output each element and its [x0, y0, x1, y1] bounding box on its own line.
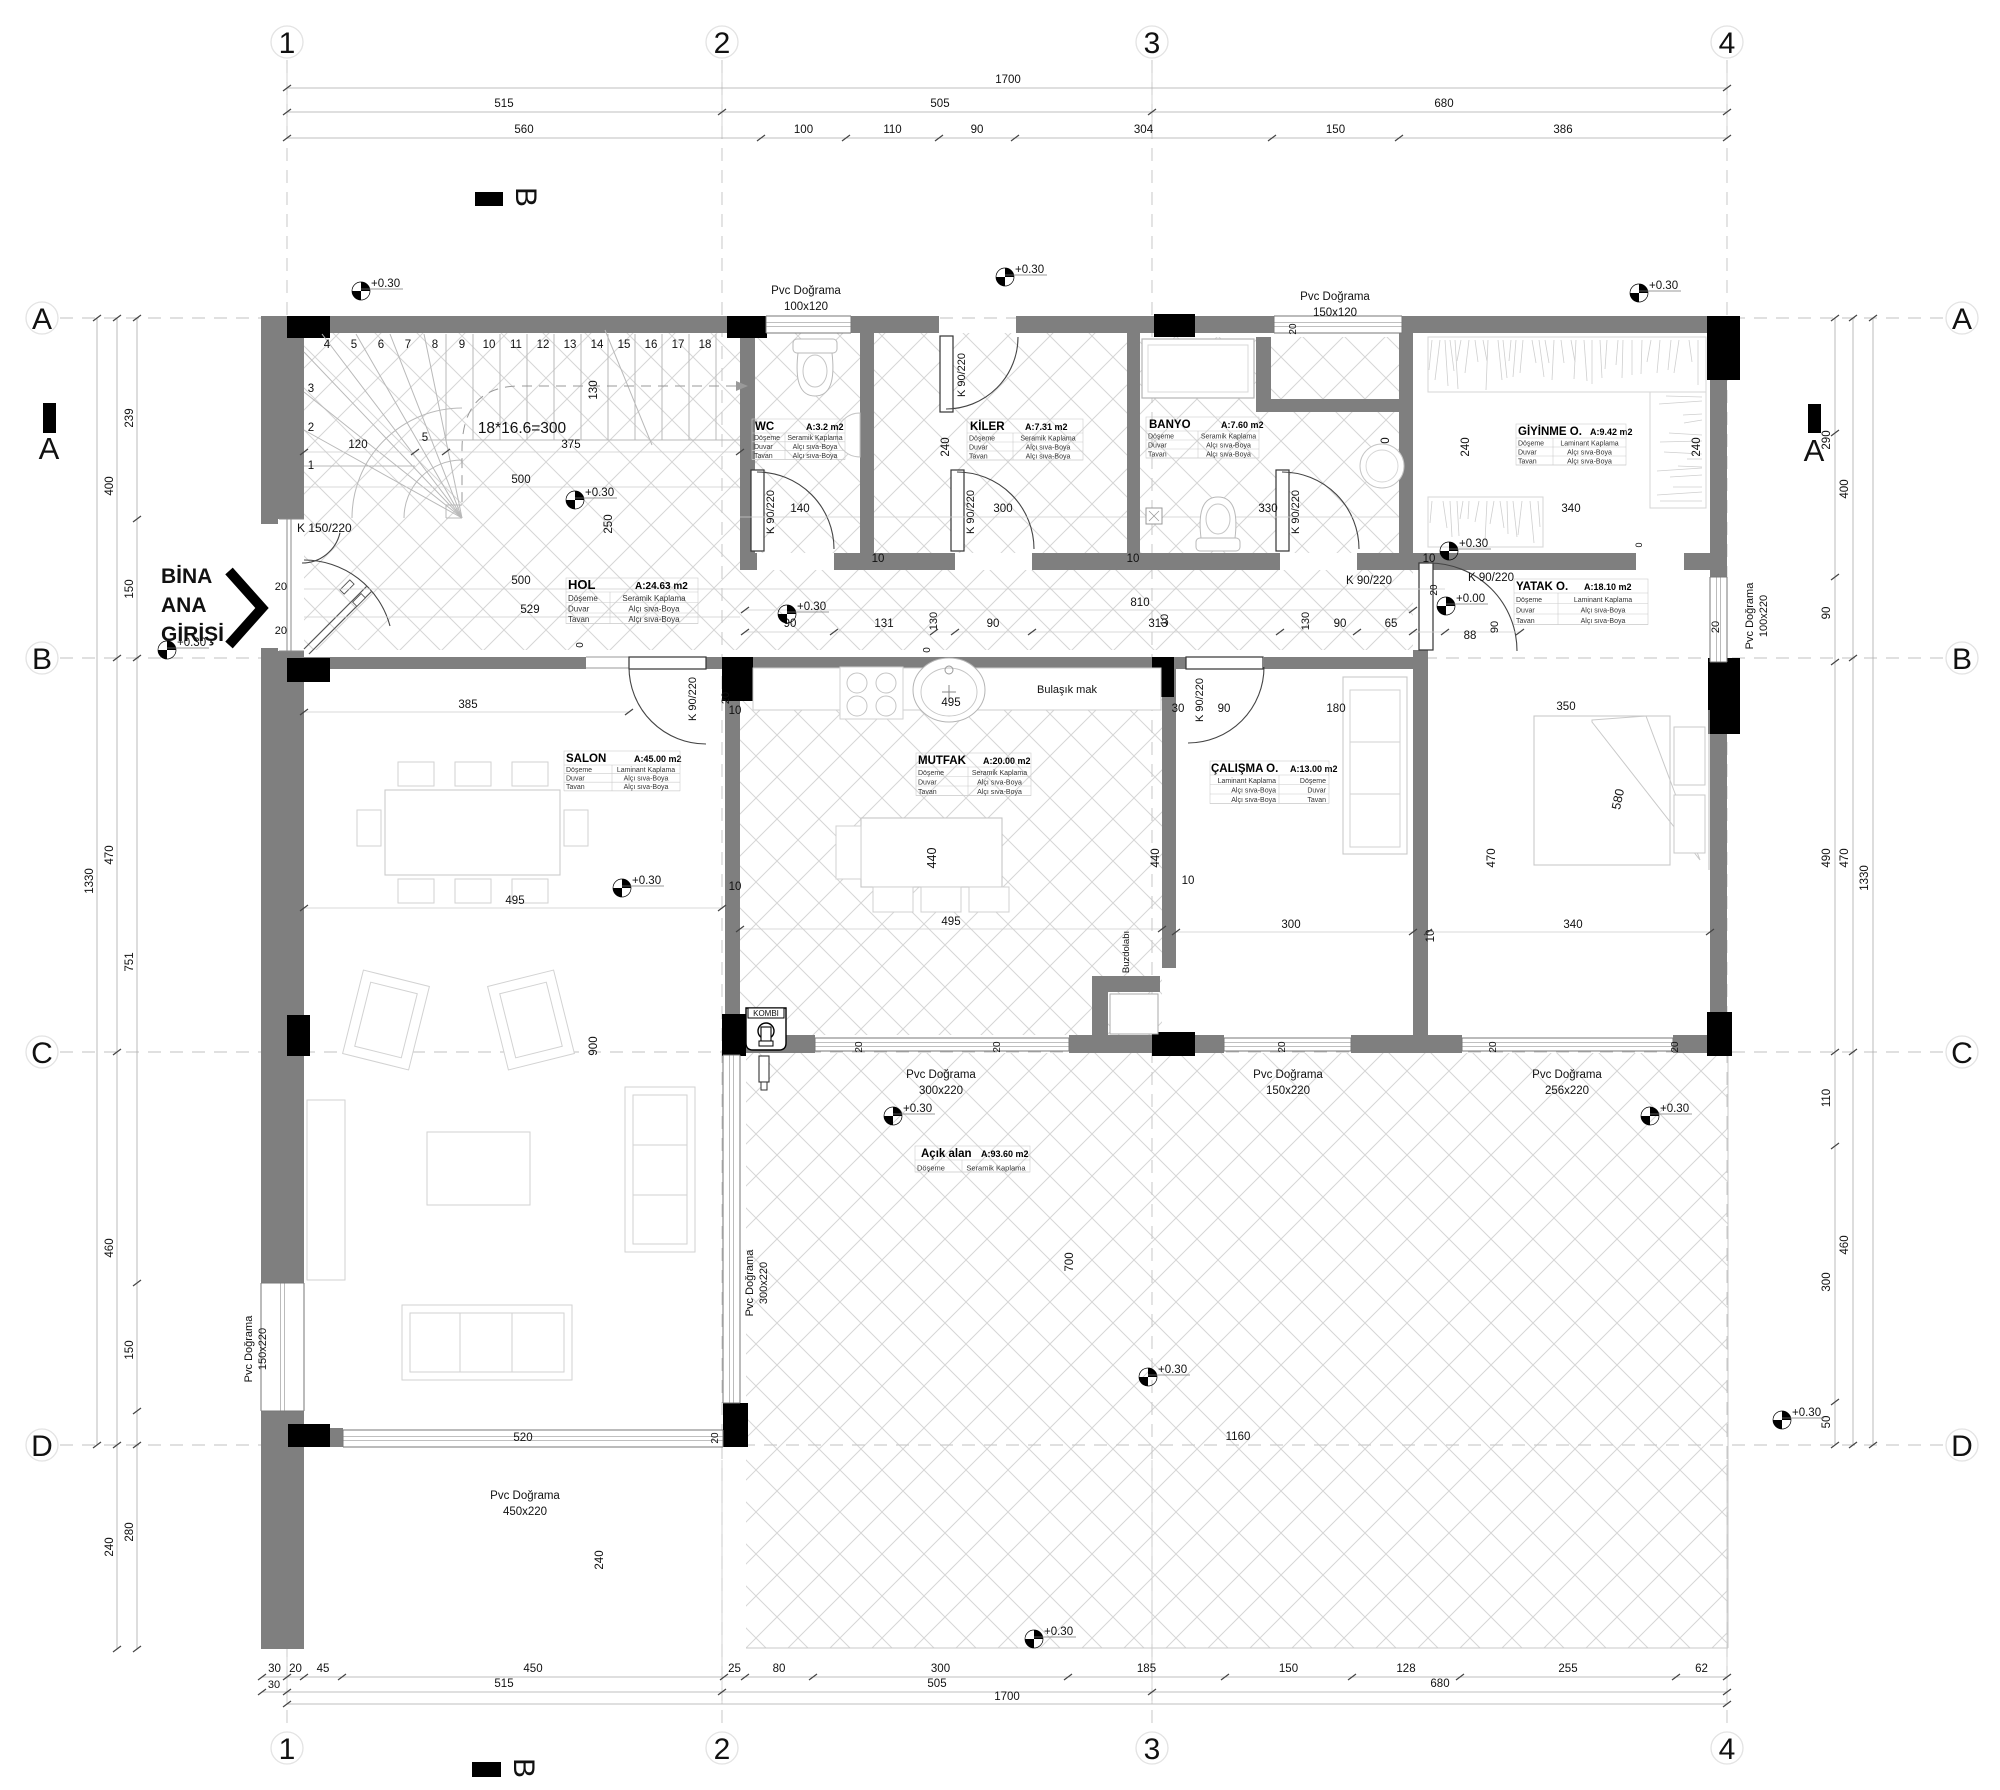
svg-text:20: 20 [720, 692, 732, 704]
svg-text:20: 20 [710, 1432, 721, 1444]
svg-text:Alçı sıva-Boya: Alçı sıva-Boya [1026, 453, 1071, 460]
svg-text:330: 330 [1258, 503, 1277, 515]
svg-text:460: 460 [1839, 1235, 1851, 1254]
svg-text:50: 50 [1821, 1416, 1833, 1429]
svg-text:Seramik Kaplama: Seramik Kaplama [1201, 433, 1256, 440]
svg-text:300: 300 [1281, 919, 1300, 931]
svg-text:Alçı sıva-Boya: Alçı sıva-Boya [1567, 449, 1612, 456]
svg-text:340: 340 [1561, 503, 1580, 515]
svg-text:Duvar: Duvar [568, 604, 590, 613]
svg-text:A:24.63 m2: A:24.63 m2 [635, 581, 688, 592]
svg-text:+0.30: +0.30 [903, 1103, 932, 1115]
svg-text:+0.30: +0.30 [1792, 1407, 1821, 1419]
svg-text:20: 20 [289, 1663, 302, 1675]
svg-text:Laminant Kaplama: Laminant Kaplama [1560, 440, 1618, 447]
svg-text:400: 400 [104, 476, 116, 495]
svg-text:A: A [32, 303, 52, 336]
svg-text:350: 350 [1556, 701, 1575, 713]
svg-text:130: 130 [588, 380, 600, 399]
svg-text:MUTFAK: MUTFAK [918, 755, 967, 767]
svg-text:+0.30: +0.30 [371, 278, 400, 290]
svg-text:90: 90 [971, 124, 984, 136]
svg-text:K 90/220: K 90/220 [1194, 678, 1206, 722]
svg-text:4: 4 [1719, 1733, 1736, 1766]
svg-text:2: 2 [714, 27, 731, 60]
svg-text:B: B [507, 1758, 540, 1778]
svg-text:+0.30: +0.30 [1649, 280, 1678, 292]
svg-text:150x220: 150x220 [257, 1328, 269, 1370]
svg-text:Buzdolabı: Buzdolabı [1121, 931, 1132, 973]
svg-text:450: 450 [523, 1663, 542, 1675]
svg-text:Alçı sıva-Boya: Alçı sıva-Boya [1206, 451, 1251, 458]
svg-text:11: 11 [510, 339, 522, 351]
svg-text:150: 150 [124, 1340, 136, 1359]
svg-text:K 90/220: K 90/220 [956, 353, 968, 397]
svg-text:10: 10 [1182, 875, 1195, 887]
svg-text:470: 470 [1839, 848, 1851, 867]
svg-text:10: 10 [1159, 614, 1171, 626]
svg-text:9: 9 [459, 339, 465, 351]
svg-text:3: 3 [1144, 27, 1161, 60]
svg-text:+0.30: +0.30 [1015, 264, 1044, 276]
svg-text:Tavan: Tavan [754, 453, 773, 460]
svg-text:Bulaşık mak: Bulaşık mak [1037, 684, 1097, 696]
svg-text:Laminant Kaplama: Laminant Kaplama [617, 767, 675, 774]
svg-text:25: 25 [728, 1663, 741, 1675]
svg-text:180: 180 [1326, 703, 1345, 715]
svg-text:130: 130 [928, 612, 940, 630]
svg-text:Tavan: Tavan [568, 615, 589, 624]
svg-text:30: 30 [1172, 703, 1185, 715]
svg-text:700: 700 [1064, 1252, 1076, 1271]
svg-text:5: 5 [351, 339, 357, 351]
svg-text:385: 385 [458, 699, 477, 711]
svg-text:A:93.60 m2: A:93.60 m2 [981, 1149, 1029, 1159]
svg-text:KOMBI: KOMBI [753, 1009, 779, 1018]
svg-text:440: 440 [925, 848, 939, 869]
svg-text:A: A [39, 431, 60, 466]
svg-text:110: 110 [883, 124, 901, 136]
svg-text:185: 185 [1137, 1663, 1156, 1675]
svg-text:Döşeme: Döşeme [1300, 778, 1326, 785]
svg-text:K 90/220: K 90/220 [965, 490, 977, 534]
svg-text:K 90/220: K 90/220 [687, 677, 699, 721]
svg-text:A:45.00 m2: A:45.00 m2 [634, 754, 682, 764]
svg-text:Duvar: Duvar [918, 779, 937, 786]
svg-text:Tavan: Tavan [1516, 618, 1535, 625]
svg-text:HOL: HOL [568, 577, 596, 592]
svg-text:Pvc Doğrama: Pvc Doğrama [1253, 1069, 1323, 1081]
svg-text:90: 90 [1218, 703, 1231, 715]
svg-text:0: 0 [575, 642, 586, 648]
svg-text:Pvc Doğrama: Pvc Doğrama [906, 1069, 976, 1081]
svg-text:240: 240 [1691, 437, 1703, 456]
svg-text:460: 460 [104, 1238, 116, 1257]
svg-text:Pvc Doğrama: Pvc Doğrama [771, 285, 841, 297]
svg-text:+0.00: +0.00 [1456, 593, 1485, 605]
svg-text:+0.30: +0.30 [1044, 1626, 1073, 1638]
svg-text:Tavan: Tavan [969, 453, 988, 460]
svg-text:Alçı sıva-Boya: Alçı sıva-Boya [1231, 797, 1276, 804]
svg-text:490: 490 [1821, 848, 1833, 867]
svg-text:150: 150 [1279, 1663, 1298, 1675]
svg-text:A:7.31 m2: A:7.31 m2 [1025, 422, 1068, 432]
svg-text:YATAK O.: YATAK O. [1516, 581, 1568, 593]
svg-text:90: 90 [1821, 607, 1833, 620]
svg-text:7: 7 [405, 339, 411, 351]
svg-text:140: 140 [790, 503, 809, 515]
svg-text:A:7.60 m2: A:7.60 m2 [1221, 420, 1264, 430]
svg-text:400: 400 [1839, 479, 1851, 498]
svg-text:2: 2 [714, 1733, 731, 1766]
svg-text:GİYİNME O.: GİYİNME O. [1518, 425, 1582, 438]
svg-text:751: 751 [124, 952, 136, 971]
svg-text:Seramik Kaplama: Seramik Kaplama [972, 770, 1027, 777]
svg-text:Döşeme: Döşeme [568, 594, 598, 603]
svg-text:+0.30: +0.30 [1660, 1103, 1689, 1115]
svg-text:Döşeme: Döşeme [918, 770, 944, 777]
svg-text:Tavan: Tavan [1307, 797, 1326, 804]
svg-text:515: 515 [494, 98, 513, 110]
svg-text:10: 10 [729, 881, 742, 893]
svg-text:300: 300 [1821, 1272, 1833, 1291]
svg-text:20: 20 [1277, 1041, 1288, 1053]
svg-text:240: 240 [594, 1550, 606, 1569]
svg-text:Duvar: Duvar [1518, 449, 1537, 456]
svg-text:1700: 1700 [995, 74, 1021, 86]
svg-text:520: 520 [513, 1432, 532, 1444]
svg-text:+0.30: +0.30 [1459, 538, 1488, 550]
svg-text:90: 90 [1334, 618, 1347, 630]
svg-text:100: 100 [794, 124, 813, 136]
svg-text:255: 255 [1558, 1663, 1577, 1675]
svg-text:Duvar: Duvar [969, 444, 988, 451]
svg-text:505: 505 [930, 98, 949, 110]
svg-text:Alçı sıva-Boya: Alçı sıva-Boya [793, 453, 838, 460]
svg-text:10: 10 [1127, 553, 1140, 565]
svg-text:16: 16 [645, 339, 658, 351]
svg-text:Pvc Doğrama: Pvc Doğrama [490, 1490, 560, 1502]
svg-text:300: 300 [931, 1663, 950, 1675]
svg-text:900: 900 [588, 1036, 600, 1055]
svg-text:C: C [1951, 1037, 1973, 1070]
svg-text:17: 17 [672, 339, 685, 351]
svg-text:810: 810 [1130, 597, 1149, 609]
svg-text:386: 386 [1553, 124, 1572, 136]
svg-text:240: 240 [940, 437, 952, 456]
svg-text:250: 250 [603, 514, 615, 533]
svg-text:D: D [1951, 1430, 1973, 1463]
svg-text:Seramik Kaplama: Seramik Kaplama [787, 435, 842, 442]
svg-text:500: 500 [511, 474, 530, 486]
svg-text:6: 6 [378, 339, 384, 351]
svg-text:0: 0 [922, 647, 933, 653]
svg-text:3: 3 [308, 383, 314, 395]
svg-text:88: 88 [1464, 630, 1477, 642]
svg-text:505: 505 [927, 1678, 946, 1690]
svg-text:90: 90 [987, 618, 1000, 630]
svg-text:Pvc Doğrama: Pvc Doğrama [1532, 1069, 1602, 1081]
svg-text:Alçı sıva-Boya: Alçı sıva-Boya [1567, 458, 1612, 465]
svg-text:13: 13 [564, 339, 577, 351]
svg-text:KİLER: KİLER [970, 420, 1005, 433]
svg-text:K 90/220: K 90/220 [1346, 575, 1392, 587]
svg-text:Tavan: Tavan [918, 789, 937, 796]
svg-text:Pvc Doğrama: Pvc Doğrama [243, 1315, 255, 1383]
svg-text:Döşeme: Döşeme [754, 435, 780, 442]
svg-text:Pvc Doğrama: Pvc Doğrama [1300, 291, 1370, 303]
svg-text:Duvar: Duvar [566, 776, 585, 783]
svg-text:Döşeme: Döşeme [1518, 440, 1544, 447]
svg-text:Alçı sıva-Boya: Alçı sıva-Boya [628, 615, 680, 624]
svg-text:ANA: ANA [161, 594, 207, 617]
svg-text:240: 240 [104, 1537, 116, 1556]
svg-text:B: B [509, 187, 542, 207]
svg-text:B: B [1952, 643, 1972, 676]
svg-text:1160: 1160 [1226, 1431, 1251, 1443]
svg-text:D: D [31, 1430, 53, 1463]
svg-text:Alçı sıva-Boya: Alçı sıva-Boya [1231, 787, 1276, 794]
svg-text:+0.30: +0.30 [177, 637, 206, 649]
svg-text:1: 1 [279, 27, 296, 60]
svg-text:BİNA: BİNA [161, 565, 212, 588]
svg-text:B: B [32, 643, 52, 676]
svg-text:18*16.6=300: 18*16.6=300 [478, 420, 567, 437]
svg-text:3: 3 [1144, 1733, 1161, 1766]
svg-text:280: 280 [124, 1522, 136, 1541]
svg-text:240: 240 [1460, 437, 1472, 456]
svg-text:375: 375 [561, 439, 580, 451]
svg-text:K 150/220: K 150/220 [297, 521, 352, 535]
svg-text:495: 495 [505, 895, 524, 907]
svg-text:K 90/220: K 90/220 [1468, 572, 1514, 584]
svg-text:Laminant Kaplama: Laminant Kaplama [1574, 597, 1632, 604]
svg-text:1: 1 [308, 460, 314, 472]
svg-text:+0.30: +0.30 [797, 601, 826, 613]
svg-text:300x220: 300x220 [919, 1085, 963, 1097]
svg-text:15: 15 [618, 339, 631, 351]
svg-text:Döşeme: Döşeme [1148, 433, 1174, 440]
svg-text:Alçı sıva-Boya: Alçı sıva-Boya [1581, 618, 1626, 625]
svg-text:A: A [1952, 303, 1972, 336]
svg-text:680: 680 [1434, 98, 1453, 110]
svg-text:20: 20 [854, 1041, 865, 1053]
svg-text:A: A [1804, 433, 1825, 468]
svg-text:Döşeme: Döşeme [969, 435, 995, 442]
svg-text:20: 20 [992, 1041, 1003, 1053]
svg-text:Alçı sıva-Boya: Alçı sıva-Boya [1581, 607, 1626, 614]
svg-text:30: 30 [268, 1679, 280, 1691]
svg-text:128: 128 [1396, 1663, 1415, 1675]
svg-text:18: 18 [699, 339, 712, 351]
svg-text:10: 10 [1425, 930, 1437, 943]
svg-text:Laminant Kaplama: Laminant Kaplama [1218, 778, 1276, 785]
svg-text:Alçı sıva-Boya: Alçı sıva-Boya [628, 604, 680, 613]
svg-text:450x220: 450x220 [503, 1506, 547, 1518]
svg-text:150: 150 [1326, 124, 1345, 136]
svg-text:Seramik Kaplama: Seramik Kaplama [622, 594, 686, 603]
svg-text:12: 12 [537, 339, 550, 351]
svg-text:239: 239 [124, 408, 136, 427]
svg-text:100x220: 100x220 [1758, 595, 1770, 637]
svg-text:Pvc Doğrama: Pvc Doğrama [1744, 582, 1756, 650]
svg-text:45: 45 [317, 1663, 330, 1675]
svg-text:WC: WC [755, 421, 774, 433]
svg-text:495: 495 [941, 697, 960, 709]
svg-text:529: 529 [520, 604, 539, 616]
svg-text:131: 131 [874, 618, 893, 630]
svg-text:2: 2 [308, 422, 314, 434]
svg-text:100x120: 100x120 [784, 301, 828, 313]
svg-text:Döşeme: Döşeme [917, 1163, 945, 1172]
svg-text:20: 20 [1429, 584, 1440, 596]
svg-text:10: 10 [1423, 553, 1436, 565]
svg-text:440: 440 [1150, 848, 1162, 867]
svg-text:150x120: 150x120 [1313, 307, 1357, 319]
svg-text:20: 20 [275, 581, 287, 593]
svg-text:4: 4 [324, 339, 331, 351]
svg-text:0: 0 [1634, 542, 1644, 547]
svg-text:+0.30: +0.30 [1158, 1364, 1187, 1376]
svg-text:Seramik Kaplama: Seramik Kaplama [1020, 435, 1075, 442]
svg-text:Alçı sıva-Boya: Alçı sıva-Boya [977, 789, 1022, 796]
svg-text:Döşeme: Döşeme [1516, 597, 1542, 604]
svg-text:10: 10 [872, 553, 885, 565]
svg-text:470: 470 [104, 845, 116, 864]
svg-text:80: 80 [773, 1663, 786, 1675]
svg-text:20: 20 [1670, 1041, 1681, 1053]
svg-text:495: 495 [941, 916, 960, 928]
svg-text:SALON: SALON [566, 753, 606, 765]
svg-text:Tavan: Tavan [1518, 458, 1537, 465]
svg-text:Alçı sıva-Boya: Alçı sıva-Boya [793, 444, 838, 451]
svg-text:Duvar: Duvar [754, 444, 773, 451]
svg-text:340: 340 [1563, 919, 1582, 931]
svg-text:K 90/220: K 90/220 [765, 490, 777, 534]
svg-text:1700: 1700 [994, 1691, 1020, 1703]
svg-text:62: 62 [1695, 1663, 1708, 1675]
svg-text:20: 20 [275, 625, 287, 637]
svg-text:150: 150 [124, 579, 136, 598]
svg-text:470: 470 [1486, 848, 1498, 867]
svg-text:BANYO: BANYO [1149, 419, 1191, 431]
svg-text:Açık alan: Açık alan [921, 1148, 972, 1160]
svg-text:10: 10 [483, 339, 496, 351]
svg-text:Alçı sıva-Boya: Alçı sıva-Boya [1026, 444, 1071, 451]
svg-text:1330: 1330 [1859, 865, 1871, 891]
svg-text:30: 30 [268, 1663, 281, 1675]
svg-text:C: C [31, 1037, 53, 1070]
svg-text:Tavan: Tavan [566, 784, 585, 791]
svg-text:110: 110 [1821, 1089, 1833, 1107]
svg-text:+0.30: +0.30 [585, 487, 614, 499]
svg-text:10: 10 [729, 705, 742, 717]
svg-text:A:18.10 m2: A:18.10 m2 [1584, 582, 1632, 592]
svg-text:8: 8 [432, 339, 438, 351]
svg-text:304: 304 [1134, 124, 1154, 136]
svg-text:A:3.2 m2: A:3.2 m2 [806, 422, 844, 432]
svg-text:1: 1 [279, 1733, 296, 1766]
svg-text:90: 90 [1489, 621, 1501, 633]
svg-text:+0.30: +0.30 [632, 875, 661, 887]
svg-text:ÇALIŞMA O.: ÇALIŞMA O. [1211, 763, 1278, 775]
svg-text:20: 20 [1710, 621, 1722, 633]
svg-text:A:20.00 m2: A:20.00 m2 [983, 756, 1031, 766]
svg-text:65: 65 [1385, 618, 1398, 630]
svg-text:Döşeme: Döşeme [566, 767, 592, 774]
svg-text:Alçı sıva-Boya: Alçı sıva-Boya [624, 776, 669, 783]
svg-text:4: 4 [1719, 27, 1736, 60]
svg-text:Pvc Doğrama: Pvc Doğrama [744, 1249, 756, 1317]
svg-text:Tavan: Tavan [1148, 451, 1167, 458]
svg-text:500: 500 [511, 575, 530, 587]
svg-text:150x220: 150x220 [1266, 1085, 1310, 1097]
svg-text:1330: 1330 [84, 868, 96, 894]
svg-text:120: 120 [348, 439, 367, 451]
svg-text:20: 20 [1488, 1041, 1499, 1053]
svg-text:Alçı sıva-Boya: Alçı sıva-Boya [1206, 442, 1251, 449]
svg-text:Seramik Kaplama: Seramik Kaplama [966, 1163, 1026, 1172]
svg-text:680: 680 [1430, 1678, 1449, 1690]
svg-text:300: 300 [993, 503, 1012, 515]
svg-text:515: 515 [494, 1678, 513, 1690]
svg-text:Duvar: Duvar [1516, 607, 1535, 614]
svg-text:130: 130 [1300, 612, 1312, 630]
svg-text:Alçı sıva-Boya: Alçı sıva-Boya [977, 779, 1022, 786]
svg-text:560: 560 [514, 124, 533, 136]
svg-text:20: 20 [1288, 323, 1299, 335]
svg-text:Duvar: Duvar [1148, 442, 1167, 449]
svg-text:14: 14 [591, 339, 604, 351]
svg-text:300x220: 300x220 [758, 1262, 770, 1304]
svg-text:A:13.00 m2: A:13.00 m2 [1290, 764, 1338, 774]
svg-text:Duvar: Duvar [1307, 787, 1326, 794]
svg-text:Alçı sıva-Boya: Alçı sıva-Boya [624, 784, 669, 791]
svg-text:K 90/220: K 90/220 [1290, 490, 1302, 534]
svg-text:5: 5 [422, 432, 428, 444]
svg-text:256x220: 256x220 [1545, 1085, 1589, 1097]
